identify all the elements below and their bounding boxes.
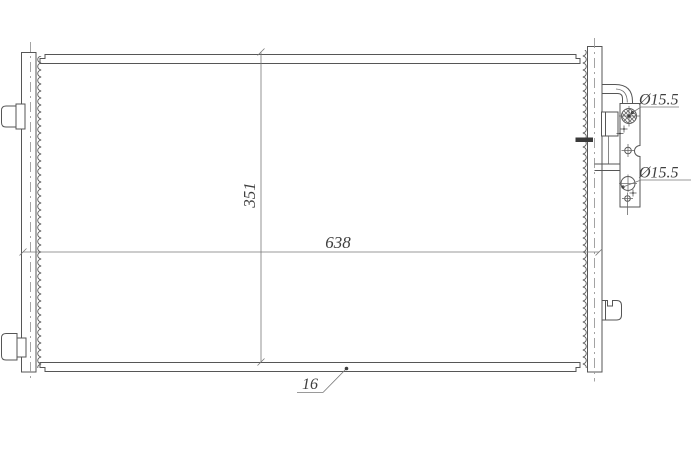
- dimension-width: 638: [20, 233, 603, 256]
- pin-head: [2, 106, 17, 127]
- elbow-inner-wall: [602, 94, 623, 104]
- bottom-port-diameter-label: Ø15.5: [638, 165, 679, 182]
- fitting-plate-outline: [620, 104, 640, 208]
- left-top-mounting-pin: [2, 104, 26, 129]
- height-dimension-label: 351: [240, 182, 259, 209]
- top-port-diameter-label: Ø15.5: [638, 92, 679, 109]
- top-header-plate: [40, 55, 580, 64]
- thickness-dimension-label: 16: [302, 376, 318, 393]
- left-tank: [2, 42, 43, 382]
- inlet-elbow-pipe: [602, 85, 633, 104]
- receiver-block-body: [602, 112, 619, 136]
- pin-head: [2, 334, 18, 361]
- pin-stem: [17, 338, 26, 357]
- fitting-plate: [620, 104, 640, 208]
- width-dimension-label: 638: [325, 233, 351, 252]
- top-plate-outline: [40, 55, 580, 64]
- pin-stem: [16, 104, 25, 129]
- right-fin-edge: [582, 50, 588, 368]
- bottom-plate-outline: [40, 363, 580, 372]
- tank-baffle-mark: [576, 138, 594, 143]
- left-fin-edge: [36, 56, 42, 368]
- right-tank: [576, 38, 622, 382]
- right-bracket-tab: [602, 301, 622, 321]
- left-tank-body: [22, 53, 37, 373]
- bottom-header-plate: [40, 363, 580, 372]
- condenser-technical-drawing: 638 351 16 Ø15.5 Ø15.5: [0, 0, 700, 460]
- drawing-canvas: 638 351 16 Ø15.5 Ø15.5: [0, 0, 700, 460]
- top-port-center-dot: [627, 114, 631, 118]
- dimension-height: 351: [240, 49, 265, 366]
- thickness-leader-dot: [345, 367, 349, 371]
- bracket-tab-outline: [602, 301, 622, 321]
- thickness-leader-line: [323, 369, 347, 393]
